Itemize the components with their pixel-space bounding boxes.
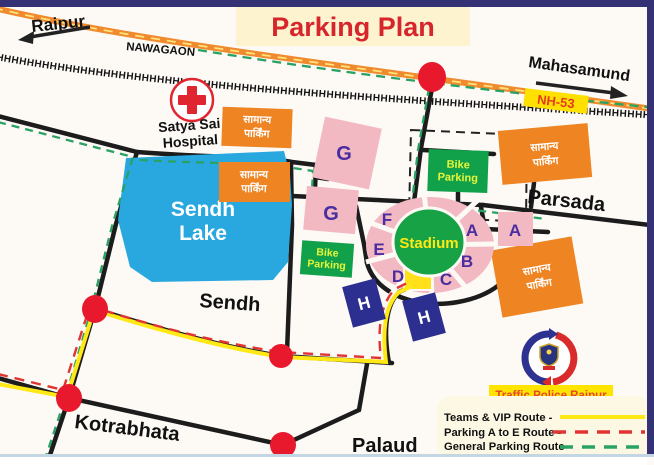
frame-bottom-white <box>0 457 647 465</box>
frame-right <box>647 0 654 456</box>
palaud-label: Palaud <box>352 435 418 457</box>
svg-text:Parking Plan: Parking Plan <box>271 12 435 42</box>
legend-label-ae: Parking A to E Route - <box>444 427 562 439</box>
lake-label-line2: Lake <box>179 222 227 245</box>
zone-d: D <box>392 267 404 286</box>
svg-text:Parking: Parking <box>437 171 478 184</box>
junction-circle-sendh <box>269 344 293 368</box>
frame-bottom <box>0 454 654 457</box>
svg-text:पार्किंग: पार्किंग <box>240 182 267 195</box>
zone-f: F <box>382 210 392 229</box>
zone-b: B <box>461 252 473 271</box>
bike-parking-box-1: Bike Parking <box>427 149 488 193</box>
hospital-icon <box>171 79 213 121</box>
general-parking-box-3: सामान्य पार्किंग <box>498 123 592 185</box>
general-parking-box-4: सामान्य पार्किंग <box>491 236 584 317</box>
svg-text:पार्किंग: पार्किंग <box>243 127 271 141</box>
general-parking-box-1: सामान्य पार्किंग <box>221 107 292 148</box>
zone-e: E <box>373 240 384 259</box>
junction-circle-nh53 <box>418 62 446 92</box>
zone-c: C <box>440 270 452 289</box>
bike-parking-box-2: Bike Parking <box>300 240 354 278</box>
sendh-village-label: Sendh <box>199 290 262 316</box>
junction-circle-west2 <box>56 384 82 412</box>
legend-label-general: General Parking Route - <box>444 441 572 453</box>
zone-a1: A <box>466 221 478 240</box>
svg-text:G: G <box>336 143 352 165</box>
hospital-label: Satya Sai Hospital <box>158 115 222 151</box>
frame-top <box>0 0 654 7</box>
parking-plan-map: HHHHHHHHHHHHHHHHHHHHHHHHHHHHHHHHHHHHHHHH… <box>0 0 654 465</box>
legend-label-vip: Teams & VIP Route - <box>444 412 553 424</box>
svg-text:G: G <box>323 203 339 225</box>
page-title: Parking Plan <box>236 4 470 46</box>
route-legend: Teams & VIP Route - Parking A to E Route… <box>437 396 652 458</box>
svg-text:पार्किंग: पार्किंग <box>531 154 559 169</box>
svg-text:सामान्य: सामान्य <box>239 169 269 181</box>
zone-a2: A <box>509 221 521 240</box>
junction-circle-west1 <box>82 295 108 323</box>
stadium-label: Stadium <box>399 235 458 252</box>
svg-text:सामान्य: सामान्य <box>242 113 272 126</box>
general-parking-box-2: सामान्य पार्किंग <box>219 162 290 202</box>
svg-text:Bike: Bike <box>446 159 470 172</box>
